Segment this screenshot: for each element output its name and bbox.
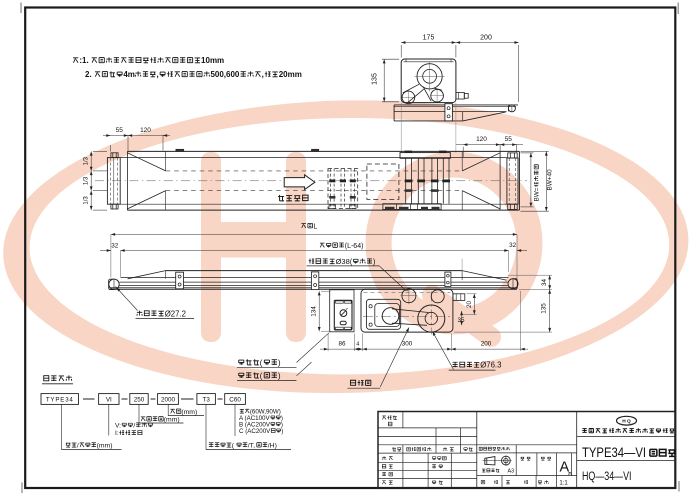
svg-text:4m: 4m (123, 70, 135, 79)
svg-text:2.: 2. (85, 70, 92, 79)
svg-text:TYPE34—VI: TYPE34—VI (582, 445, 646, 460)
svg-text:Ø38(: Ø38( (336, 257, 353, 266)
svg-text:34: 34 (541, 279, 548, 287)
svg-text:/: / (77, 442, 79, 449)
svg-text:1/3: 1/3 (84, 156, 90, 165)
svg-text:250: 250 (134, 396, 145, 403)
svg-text:VI: VI (106, 396, 112, 403)
svg-text:(: ( (260, 358, 263, 367)
svg-text:120: 120 (140, 127, 151, 134)
svg-text:/T,: /T, (248, 442, 255, 449)
svg-text:32: 32 (111, 243, 119, 250)
svg-text:20mm: 20mm (279, 70, 302, 79)
svg-text:BW+40: BW+40 (547, 169, 554, 191)
svg-text:Ø27.2: Ø27.2 (165, 309, 186, 318)
svg-text:,: , (157, 70, 159, 79)
svg-text:1:1: 1:1 (559, 480, 568, 486)
svg-text:): ) (281, 428, 283, 435)
svg-text:TYPE34: TYPE34 (46, 396, 74, 403)
svg-text:): ) (278, 358, 281, 367)
svg-text:86: 86 (338, 340, 346, 347)
svg-text:H Q: H Q (622, 419, 631, 425)
svg-text:HQ—34—VI: HQ—34—VI (582, 471, 632, 483)
svg-text:120: 120 (476, 136, 487, 143)
svg-text:1/3: 1/3 (84, 196, 90, 205)
svg-text:134: 134 (311, 306, 318, 317)
svg-text:10mm: 10mm (201, 56, 224, 65)
svg-text:32: 32 (509, 242, 517, 249)
svg-text:T3: T3 (202, 396, 210, 403)
svg-text:C (AC200V: C (AC200V (239, 428, 271, 435)
svg-text:BW=: BW= (534, 187, 541, 201)
svg-text:300: 300 (402, 340, 413, 347)
svg-text:(L-64): (L-64) (345, 243, 364, 250)
svg-text:/: / (133, 422, 135, 429)
svg-text:I:: I: (115, 430, 119, 437)
svg-text:V:: V: (115, 422, 121, 429)
svg-text:L: L (313, 223, 317, 230)
svg-text:135: 135 (540, 303, 547, 314)
svg-text:Ø76.3: Ø76.3 (480, 361, 501, 370)
svg-text:/H): /H) (268, 442, 277, 449)
svg-text:1/3: 1/3 (84, 176, 90, 185)
svg-text:(mm): (mm) (164, 416, 180, 423)
svg-text:55: 55 (505, 136, 513, 143)
svg-text:A3: A3 (508, 468, 515, 474)
svg-text:(mm): (mm) (97, 442, 113, 449)
svg-text:(mm): (mm) (181, 409, 197, 416)
svg-text:200: 200 (480, 35, 492, 42)
svg-text:20: 20 (466, 301, 473, 309)
svg-text::1.: :1. (79, 56, 88, 65)
svg-text:2000: 2000 (161, 396, 176, 403)
svg-text:,: , (262, 70, 264, 79)
svg-text:200: 200 (481, 340, 492, 347)
svg-text:175: 175 (423, 35, 435, 42)
svg-text:C60: C60 (229, 396, 241, 403)
svg-text:4: 4 (356, 341, 359, 347)
svg-text:A: A (560, 460, 570, 476)
svg-text:): ) (278, 371, 281, 380)
svg-text:500,600: 500,600 (210, 70, 239, 79)
svg-text:135: 135 (372, 73, 379, 85)
svg-text:55: 55 (116, 127, 124, 134)
svg-text:(: ( (260, 371, 263, 380)
svg-text:35: 35 (457, 317, 465, 324)
